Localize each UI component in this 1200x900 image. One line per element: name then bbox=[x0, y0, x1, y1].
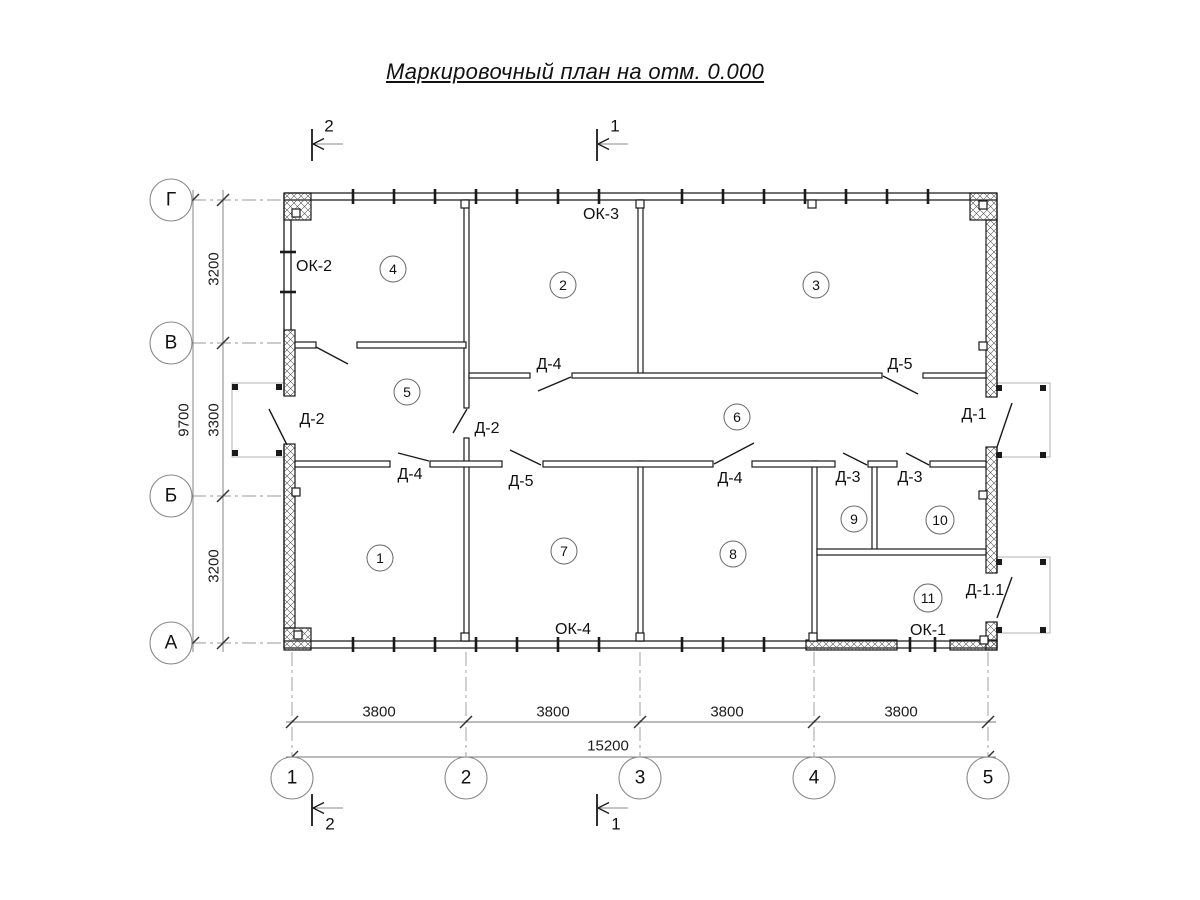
grid-col-3: 3 bbox=[635, 769, 646, 788]
room-7-number: 7 bbox=[560, 544, 568, 558]
room-11-number: 11 bbox=[921, 591, 936, 605]
door-mark-d4-room8: Д-4 bbox=[717, 471, 742, 487]
room-5-number: 5 bbox=[403, 385, 411, 399]
grid-row-v: В bbox=[165, 334, 178, 353]
grid-row-a: А bbox=[165, 634, 178, 653]
door-mark-d5-room3: Д-5 bbox=[887, 357, 912, 373]
room-3-number: 3 bbox=[812, 278, 820, 292]
sheet-title: Маркировочный план на отм. 0.000 bbox=[386, 61, 764, 83]
grid-row-g: Г bbox=[166, 191, 176, 210]
window-mark-ok1: ОК-1 bbox=[910, 623, 946, 639]
dim-v-seg-1: 3200 bbox=[207, 252, 222, 285]
section-1-bottom-label: 1 bbox=[611, 816, 620, 833]
floor-plan-sheet: Маркировочный план на отм. 0.000 Г В Б А… bbox=[0, 0, 1200, 900]
grid-bubbles bbox=[150, 179, 1009, 799]
room-1-number: 1 bbox=[376, 551, 384, 565]
room-4-number: 4 bbox=[389, 262, 397, 276]
grid-row-b: Б bbox=[165, 487, 177, 506]
grid-col-5: 5 bbox=[983, 769, 994, 788]
door-mark-d1: Д-1 bbox=[961, 407, 986, 423]
interior-walls bbox=[295, 200, 986, 641]
dim-h-total: 15200 bbox=[587, 739, 629, 754]
grid-col-1: 1 bbox=[287, 769, 298, 788]
door-mark-d4-room1: Д-4 bbox=[397, 467, 422, 483]
dim-h-seg-2: 3800 bbox=[536, 705, 569, 720]
grid-col-4: 4 bbox=[809, 769, 820, 788]
dim-v-seg-2: 3300 bbox=[207, 403, 222, 436]
room-10-number: 10 bbox=[932, 513, 948, 527]
door-mark-d5-room7: Д-5 bbox=[508, 474, 533, 490]
room-8-number: 8 bbox=[729, 547, 737, 561]
window-mark-ok4: ОК-4 bbox=[555, 622, 591, 638]
room-2-number: 2 bbox=[559, 278, 567, 292]
floor-plan-drawing bbox=[0, 0, 1200, 900]
room-9-number: 9 bbox=[850, 512, 858, 526]
room-bubbles bbox=[367, 256, 954, 612]
dim-h-seg-1: 3800 bbox=[362, 705, 395, 720]
dim-v-total: 9700 bbox=[177, 403, 192, 436]
section-marks bbox=[312, 129, 628, 826]
dim-v-seg-3: 3200 bbox=[207, 549, 222, 582]
dim-h-seg-4: 3800 bbox=[884, 705, 917, 720]
section-2-bottom-label: 2 bbox=[325, 816, 334, 833]
window-ticks bbox=[280, 189, 935, 652]
section-2-top-label: 2 bbox=[324, 118, 333, 135]
dim-h-seg-3: 3800 bbox=[710, 705, 743, 720]
grid-axis-lines bbox=[192, 200, 988, 760]
section-1-top-label: 1 bbox=[610, 118, 619, 135]
door-mark-d4-room2: Д-4 bbox=[536, 357, 561, 373]
door-mark-d3-room10: Д-3 bbox=[897, 470, 922, 486]
door-mark-d2-vestibule: Д-2 bbox=[474, 421, 499, 437]
window-mark-ok3: ОК-3 bbox=[583, 207, 619, 223]
door-mark-d3-room9: Д-3 bbox=[835, 470, 860, 486]
room-6-number: 6 bbox=[733, 410, 741, 424]
door-mark-d2-entry: Д-2 bbox=[299, 412, 324, 428]
window-mark-ok2: ОК-2 bbox=[296, 259, 332, 275]
grid-col-2: 2 bbox=[461, 769, 472, 788]
door-mark-d1-1: Д-1.1 bbox=[966, 583, 1004, 599]
